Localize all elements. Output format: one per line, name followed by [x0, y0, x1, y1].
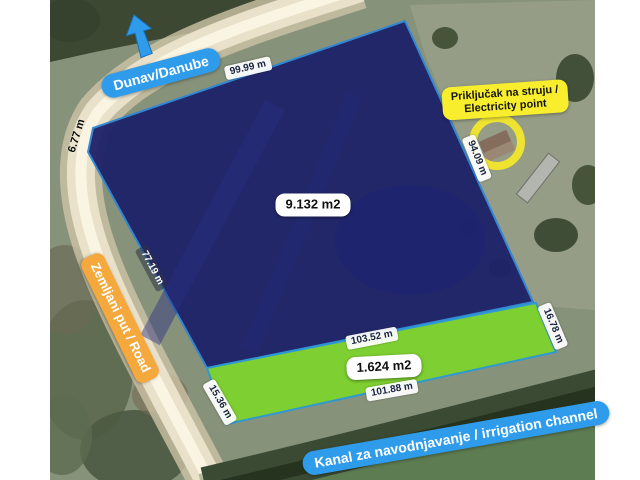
tree-blob	[432, 27, 458, 49]
left-margin	[0, 0, 50, 480]
main-plot-area-label: 9.132 m2	[276, 194, 351, 217]
annotated-parcel-map: Dunav/Danube 99.99 m 6.77 m 77.19 m 94.0…	[0, 0, 640, 480]
satellite-basemap	[0, 0, 640, 480]
strip-plot-area-label: 1.624 m2	[346, 354, 422, 381]
tree-blob	[534, 218, 578, 252]
